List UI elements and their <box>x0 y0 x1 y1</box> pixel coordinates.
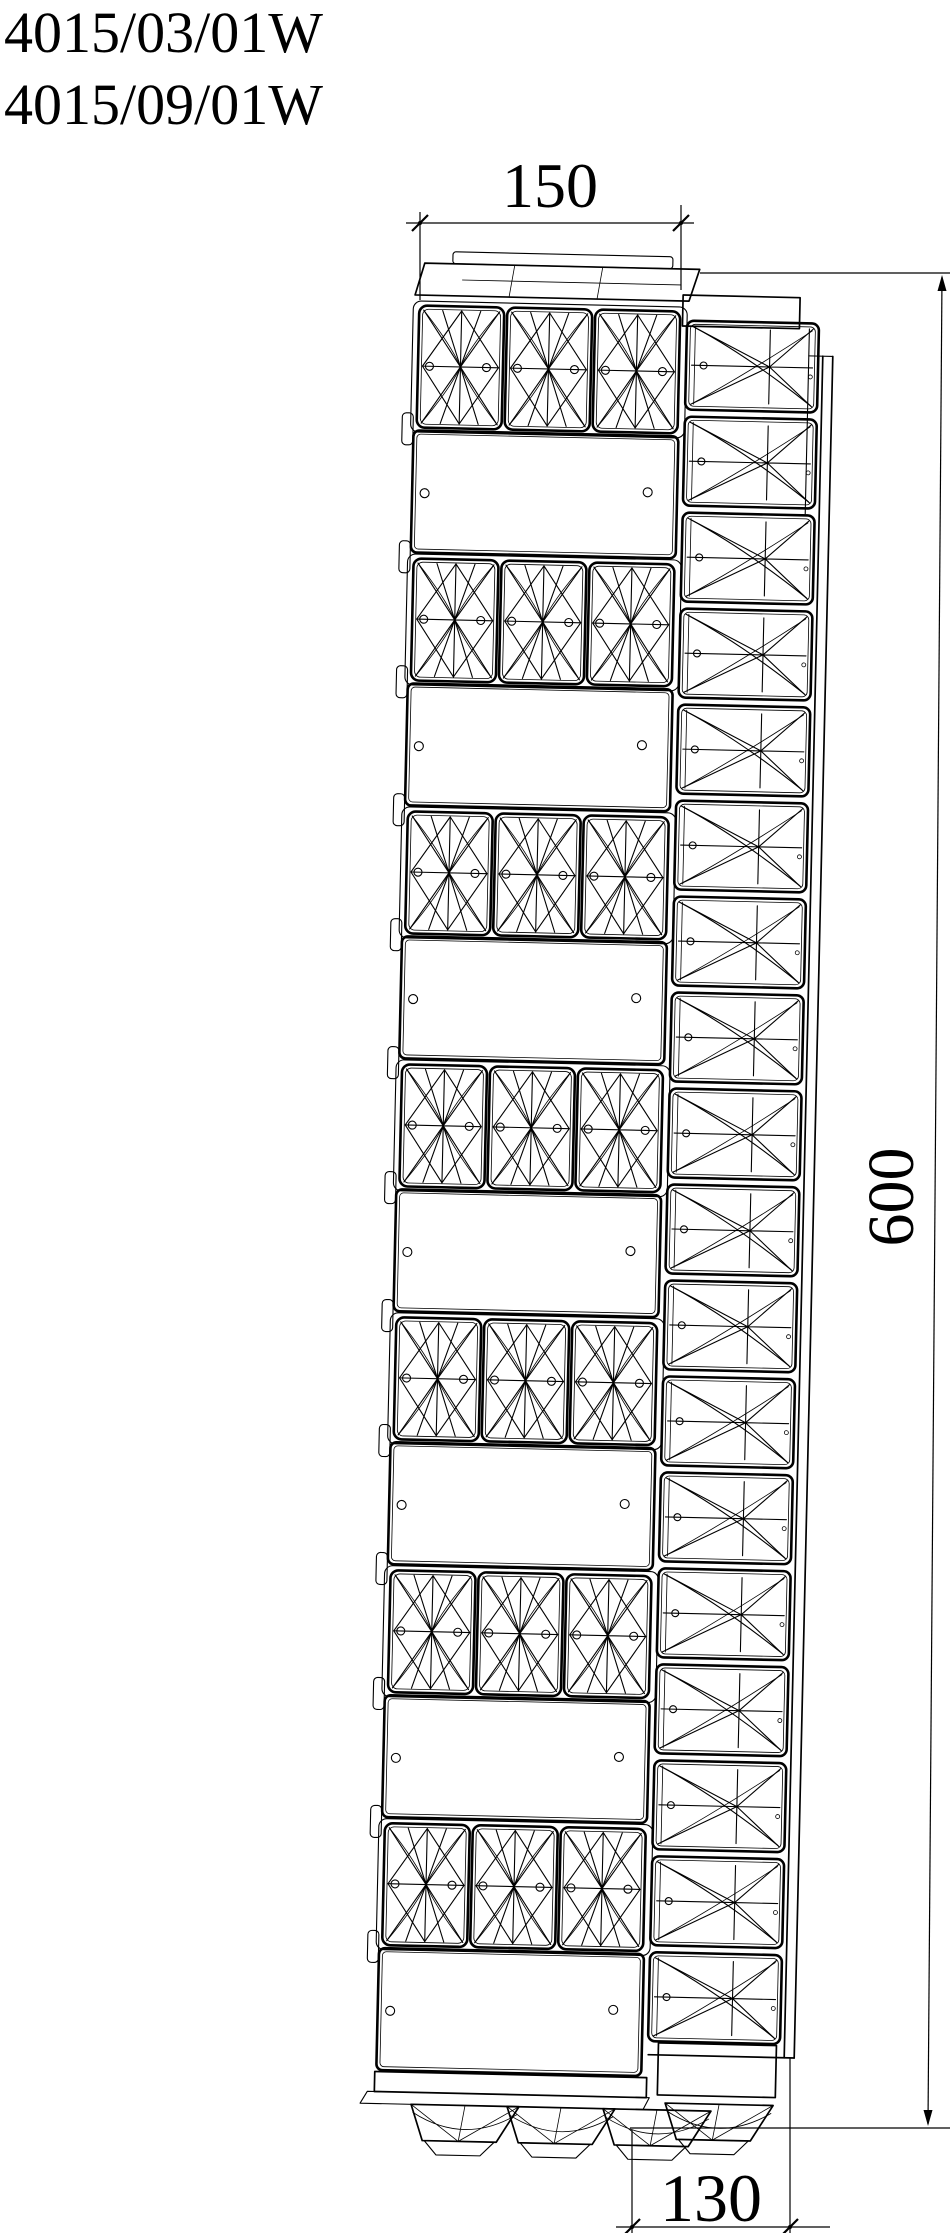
plain-panel <box>411 430 679 558</box>
side-crystal <box>676 705 810 797</box>
front-crystal <box>394 1317 482 1441</box>
top-cap-facets <box>462 264 681 301</box>
side-crystal <box>657 1568 791 1660</box>
side-crystal <box>659 1472 793 1564</box>
dim-width: 150 <box>406 150 694 300</box>
bottom-bracket <box>657 2043 776 2098</box>
front-crystal <box>470 1825 558 1949</box>
front-crystal <box>564 1574 652 1698</box>
front-crystal <box>482 1319 570 1443</box>
depth-dimension-label: 130 <box>660 2160 762 2233</box>
side-crystal <box>685 321 819 413</box>
model-number-1: 4015/03/01W <box>4 0 323 65</box>
front-crystal <box>570 1321 658 1445</box>
front-crystal <box>411 558 499 682</box>
width-dimension-label: 150 <box>502 150 598 221</box>
dim-height-line <box>928 277 942 2124</box>
front-crystal <box>505 308 593 432</box>
front-crystal <box>493 813 581 937</box>
side-crystal <box>670 992 804 1084</box>
bottom-crystal <box>506 2106 615 2158</box>
front-crystal <box>476 1572 564 1696</box>
plain-panel <box>394 1189 662 1317</box>
plain-panel <box>399 936 667 1064</box>
model-numbers: 4015/03/01W 4015/09/01W <box>4 0 323 137</box>
plain-panel <box>382 1695 650 1823</box>
side-crystal <box>665 1184 799 1276</box>
side-crystal <box>655 1664 789 1756</box>
plain-panel <box>388 1442 656 1570</box>
front-crystal <box>405 811 493 935</box>
bracket-back-edge <box>805 329 809 514</box>
front-crystal <box>593 310 681 434</box>
front-crystal <box>388 1570 476 1694</box>
lamp-dimension-drawing: 4015/03/01W 4015/09/01W <box>0 0 952 2233</box>
side-crystal <box>648 1952 782 2044</box>
bottom-crystal <box>410 2104 519 2156</box>
side-crystal <box>663 1280 797 1372</box>
fixture-views <box>359 251 835 2163</box>
side-crystal <box>674 800 808 892</box>
dim-arrow-down <box>924 2110 933 2126</box>
front-view <box>360 251 700 2110</box>
side-crystal <box>683 417 817 509</box>
plain-panel <box>376 1948 644 2076</box>
model-number-2: 4015/09/01W <box>4 72 323 137</box>
front-crystal <box>417 306 505 430</box>
bottom-crystals <box>410 2097 773 2162</box>
plain-panel <box>405 683 673 811</box>
side-crystal <box>668 1088 802 1180</box>
height-dimension-label: 600 <box>855 1148 928 1247</box>
front-crystal <box>487 1066 575 1190</box>
front-crystal <box>587 562 675 686</box>
side-crystal <box>661 1376 795 1468</box>
side-crystal <box>681 513 815 605</box>
side-crystal <box>652 1760 786 1852</box>
side-crystal <box>672 896 806 988</box>
front-crystal <box>499 560 587 684</box>
front-crystal <box>575 1068 663 1192</box>
front-crystal <box>581 815 669 939</box>
dim-arrow-up <box>938 275 947 291</box>
technical-drawing-page: 4015/03/01W 4015/09/01W <box>0 0 952 2233</box>
side-crystal <box>679 609 813 701</box>
front-crystal <box>399 1064 487 1188</box>
front-crystal <box>382 1823 470 1947</box>
front-crystal <box>558 1827 646 1951</box>
side-crystal <box>650 1856 784 1948</box>
